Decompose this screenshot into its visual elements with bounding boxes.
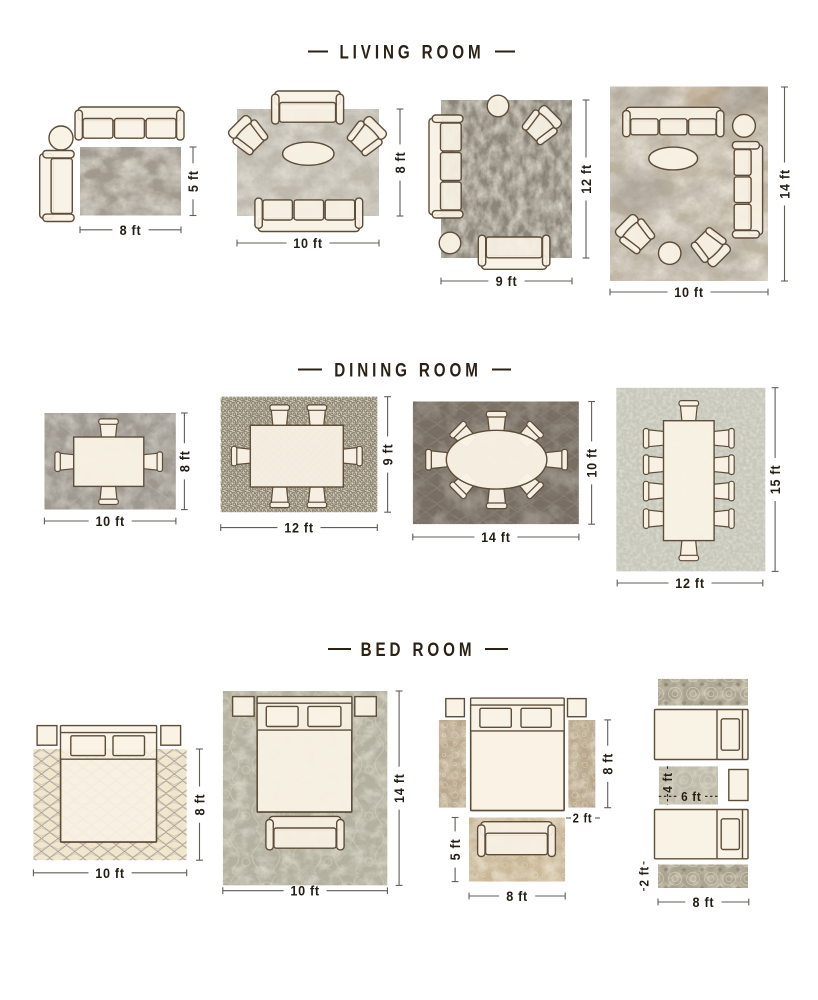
svg-text:10 ft: 10 ft: [293, 235, 322, 251]
svg-text:8 ft: 8 ft: [192, 794, 208, 816]
svg-text:14 ft: 14 ft: [481, 529, 510, 545]
svg-text:BED ROOM: BED ROOM: [361, 638, 476, 660]
svg-text:DINING ROOM: DINING ROOM: [334, 359, 482, 381]
svg-text:8 ft: 8 ft: [693, 894, 715, 910]
svg-text:8 ft: 8 ft: [506, 888, 528, 904]
svg-text:9 ft: 9 ft: [380, 444, 396, 466]
svg-text:10 ft: 10 ft: [95, 865, 124, 881]
svg-text:10 ft: 10 ft: [674, 284, 703, 300]
svg-text:12 ft: 12 ft: [675, 575, 704, 591]
svg-text:8 ft: 8 ft: [392, 152, 408, 174]
svg-text:6 ft: 6 ft: [681, 789, 701, 804]
svg-text:10 ft: 10 ft: [290, 883, 319, 899]
svg-text:8 ft: 8 ft: [120, 222, 142, 238]
svg-text:15 ft: 15 ft: [768, 465, 784, 494]
svg-text:2 ft: 2 ft: [573, 811, 593, 826]
svg-text:4 ft: 4 ft: [661, 772, 676, 792]
svg-text:8 ft: 8 ft: [177, 450, 193, 472]
svg-text:10 ft: 10 ft: [95, 513, 124, 529]
svg-text:12 ft: 12 ft: [284, 520, 313, 536]
svg-text:LIVING ROOM: LIVING ROOM: [339, 41, 484, 63]
svg-text:12 ft: 12 ft: [578, 164, 594, 193]
svg-text:5 ft: 5 ft: [185, 170, 201, 192]
svg-text:8 ft: 8 ft: [600, 753, 616, 775]
svg-text:10 ft: 10 ft: [584, 448, 600, 477]
svg-text:5 ft: 5 ft: [448, 839, 464, 861]
svg-text:14 ft: 14 ft: [392, 773, 408, 802]
svg-text:14 ft: 14 ft: [777, 169, 793, 198]
svg-text:9 ft: 9 ft: [496, 273, 518, 289]
svg-text:2 ft: 2 ft: [637, 866, 652, 886]
